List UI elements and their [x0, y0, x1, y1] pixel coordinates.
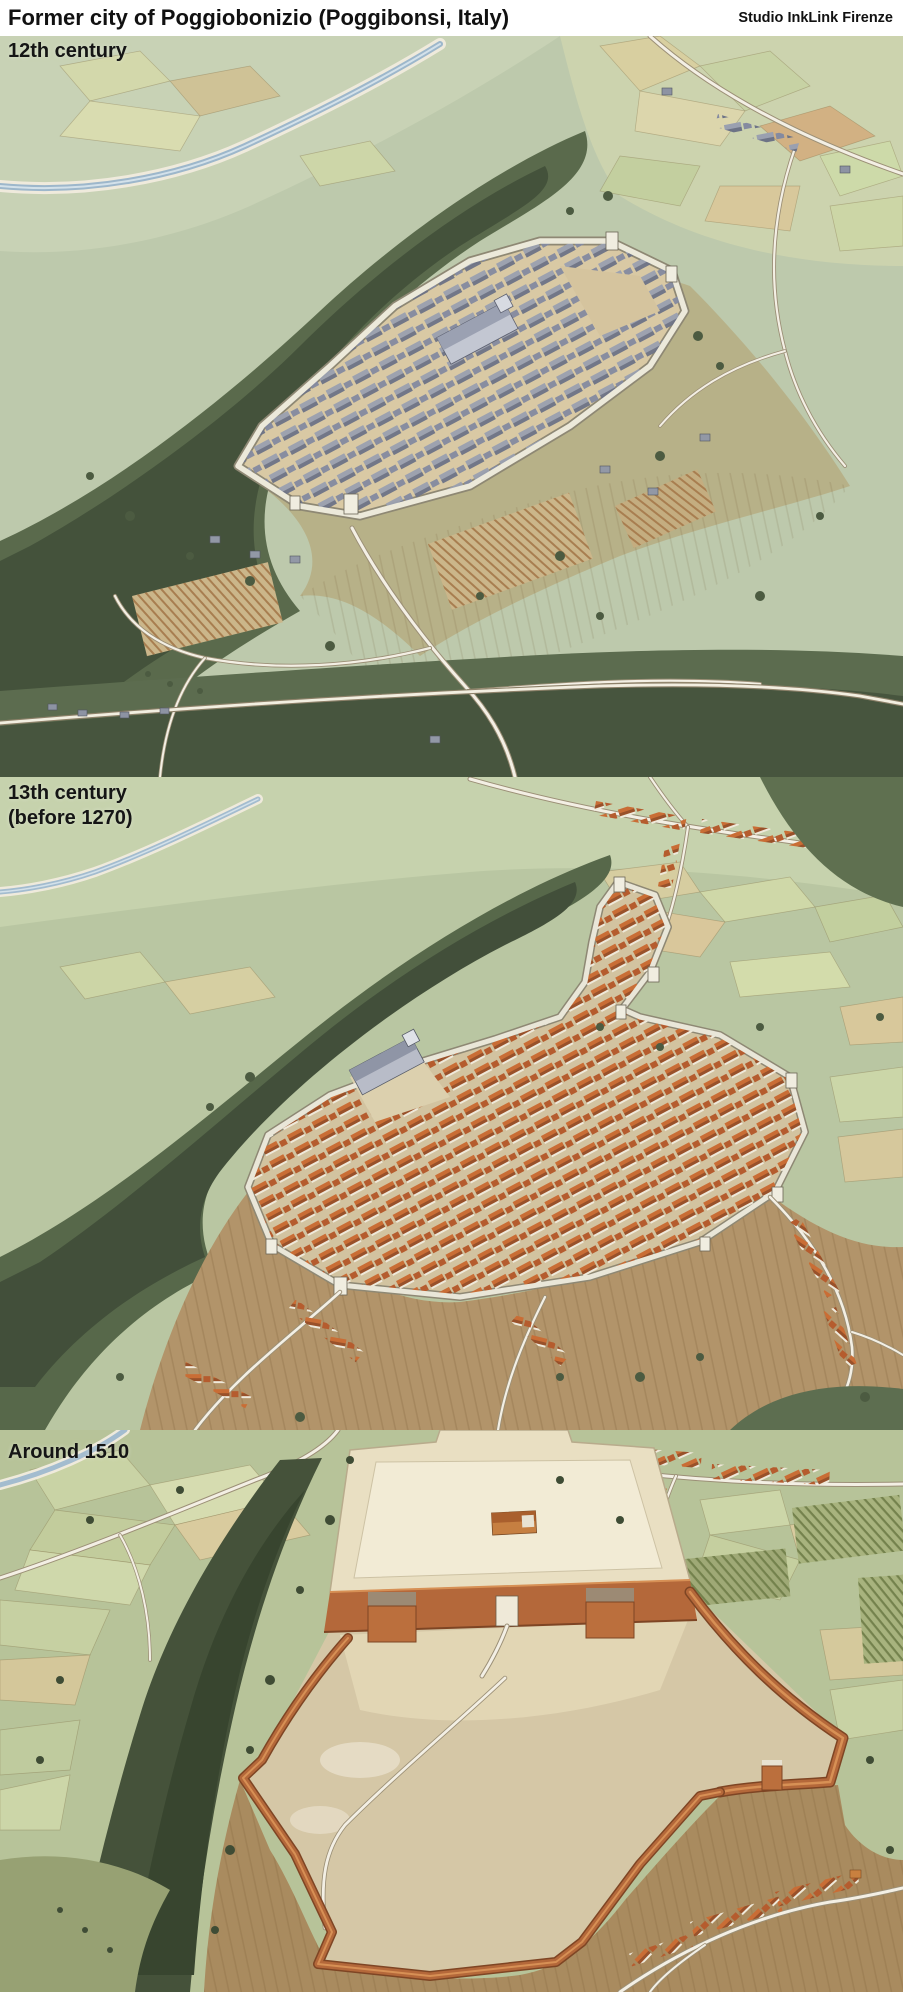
- panel-label-around-1510: Around 1510: [8, 1440, 129, 1465]
- bottom-margin: [0, 1992, 903, 2000]
- panel-label-13th-century: 13th century (before 1270): [8, 781, 133, 831]
- panel-13th-century: 13th century (before 1270): [0, 777, 903, 1430]
- illustration-12th-century: [0, 36, 903, 777]
- illustration-around-1510: [0, 1430, 903, 1992]
- bastion-west: [368, 1592, 416, 1642]
- illustration-page: Former city of Poggiobonizio (Poggibonsi…: [0, 0, 903, 2000]
- page-title: Former city of Poggiobonizio (Poggibonsi…: [8, 5, 509, 31]
- header: Former city of Poggiobonizio (Poggibonsi…: [0, 0, 903, 36]
- keep-building: [492, 1511, 537, 1535]
- gate: [496, 1596, 518, 1626]
- panel-12th-century: 12th century: [0, 36, 903, 777]
- studio-credit: Studio InkLink Firenze: [738, 10, 893, 26]
- bastion-east: [586, 1588, 634, 1638]
- panel-around-1510: Around 1510: [0, 1430, 903, 1992]
- wall-gate-tower: [762, 1760, 782, 1790]
- illustration-13th-century: [0, 777, 903, 1430]
- panel-label-12th-century: 12th century: [8, 39, 127, 64]
